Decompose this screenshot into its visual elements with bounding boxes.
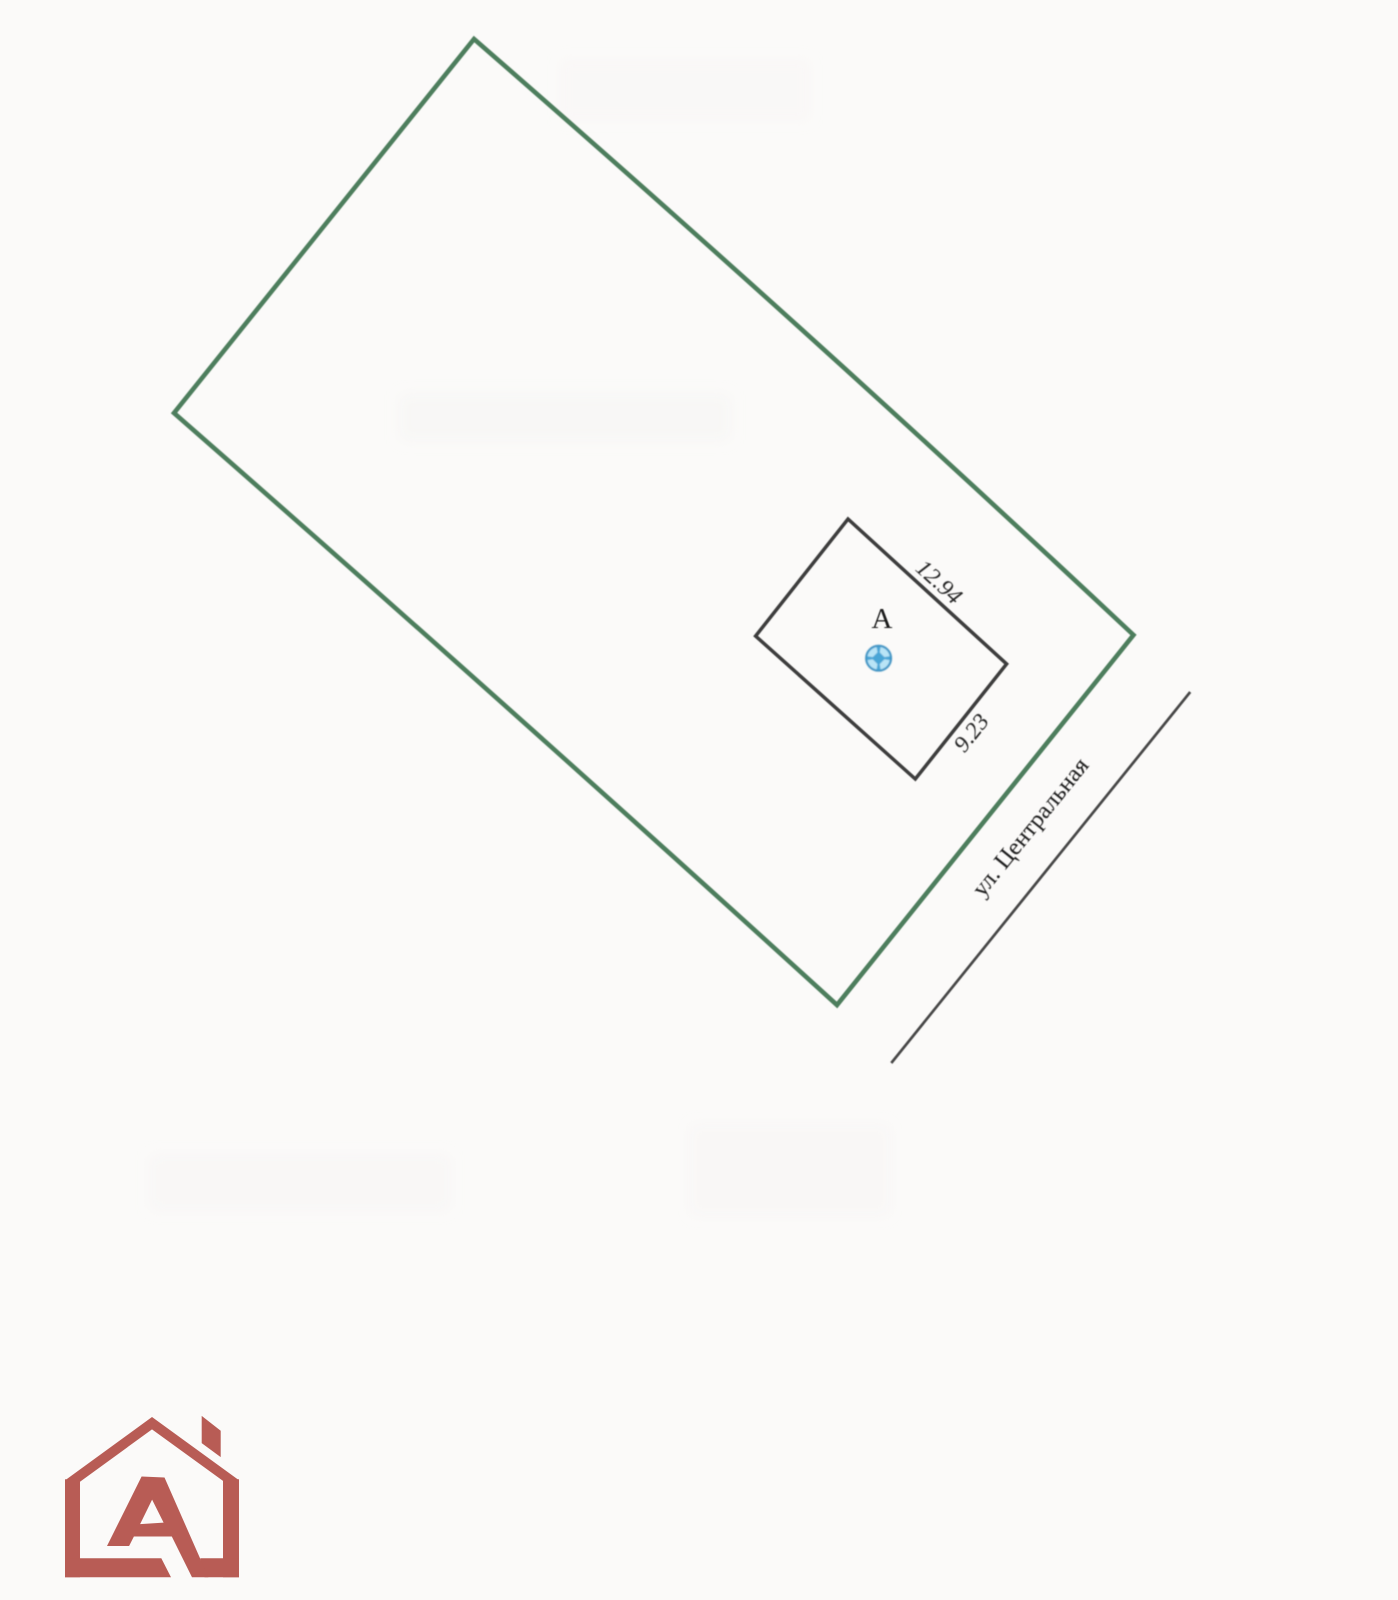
svg-text:А: А [872, 603, 893, 635]
